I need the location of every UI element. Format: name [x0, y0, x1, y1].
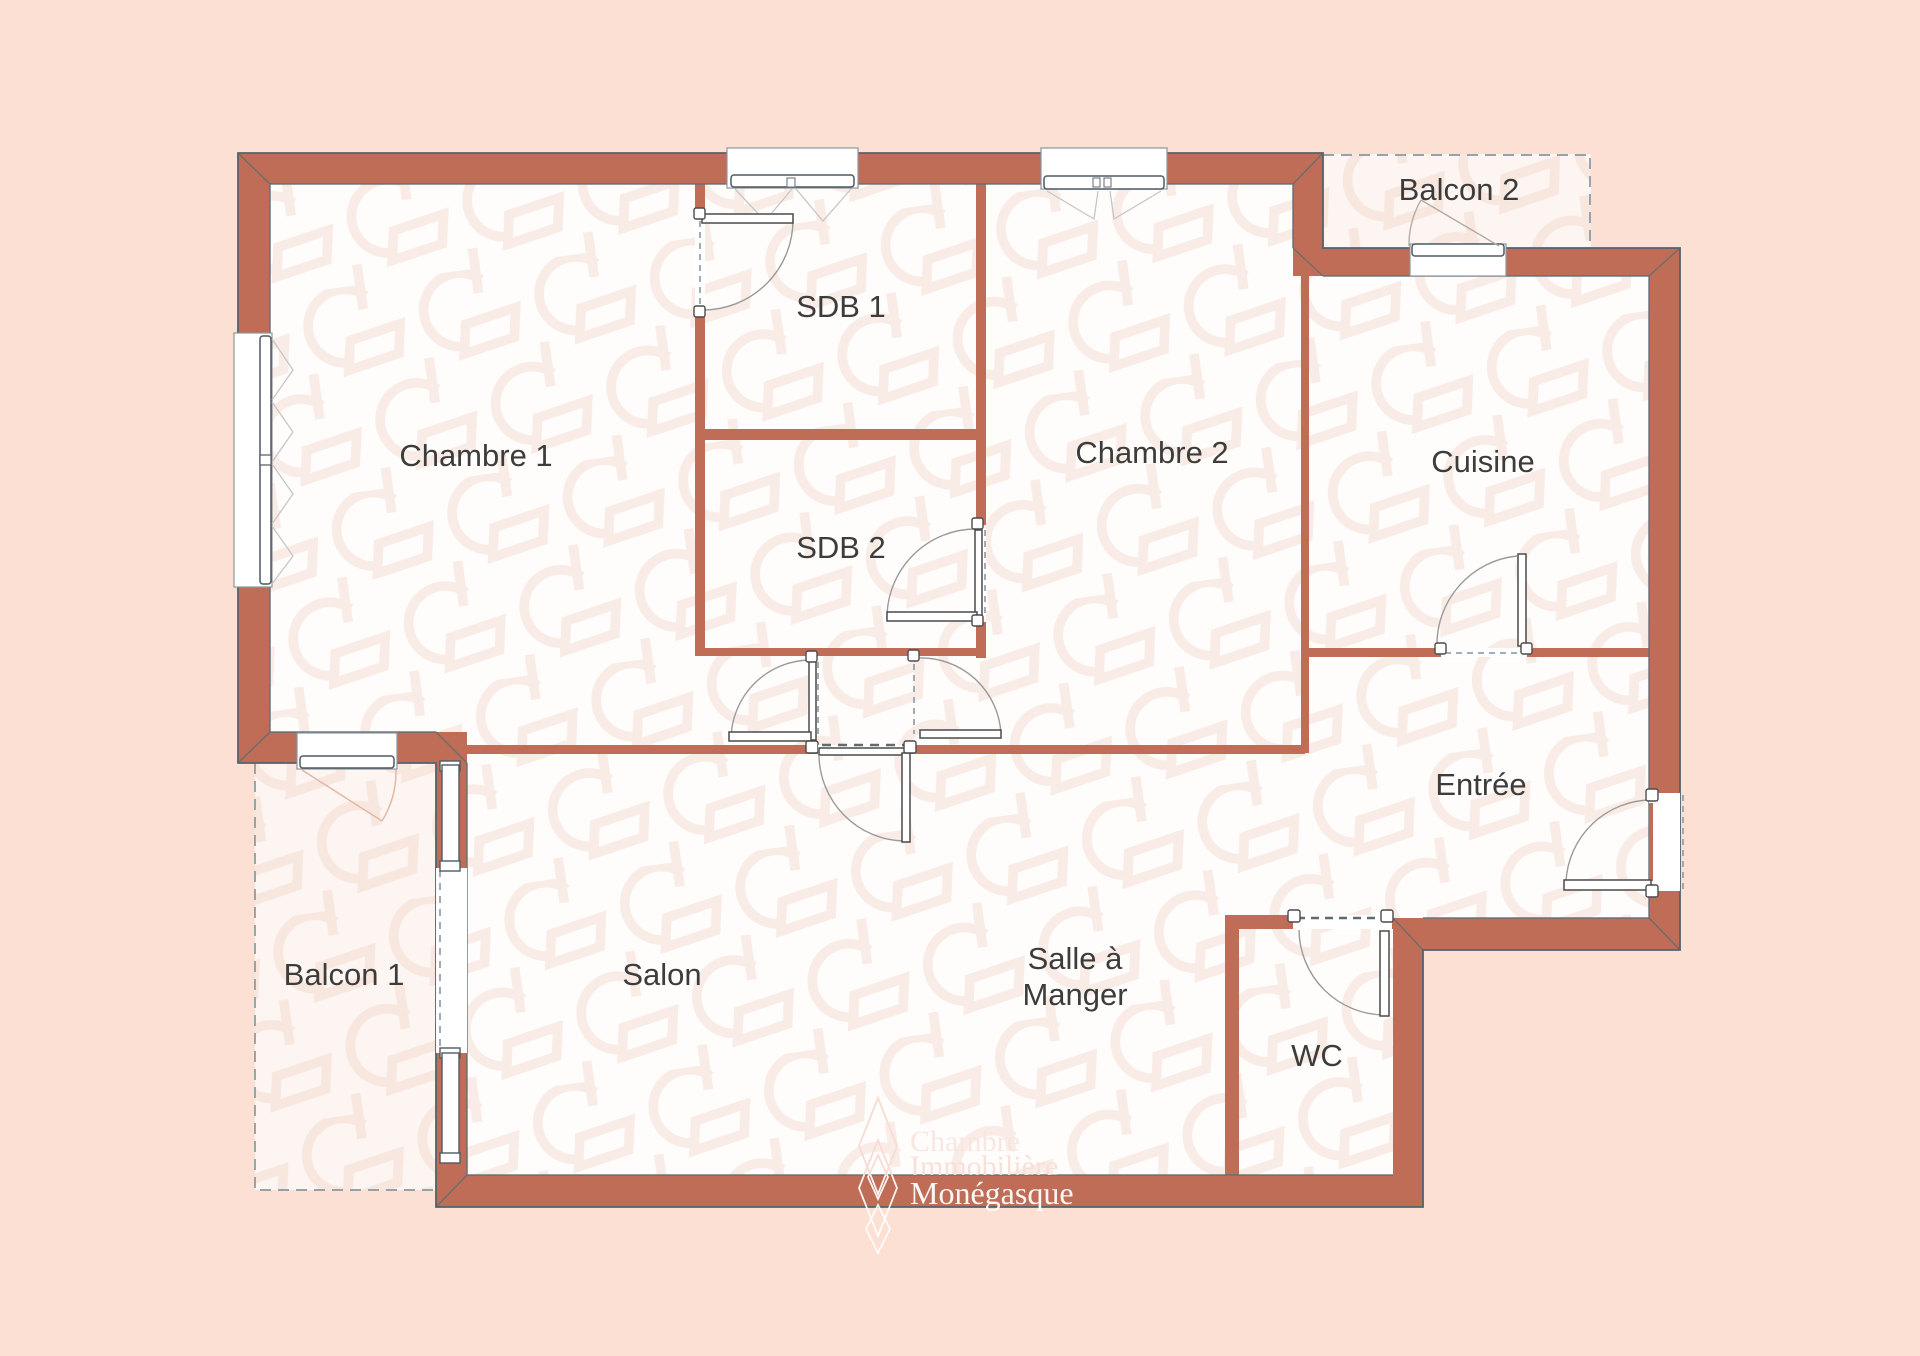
svg-text:Cuisine: Cuisine: [1431, 444, 1534, 479]
svg-text:Balcon 2: Balcon 2: [1399, 172, 1520, 207]
svg-text:Salle à: Salle à: [1028, 941, 1124, 976]
svg-text:WC: WC: [1291, 1038, 1343, 1073]
svg-text:Chambre 2: Chambre 2: [1075, 435, 1228, 470]
svg-text:Salon: Salon: [622, 957, 701, 992]
svg-text:SDB 1: SDB 1: [796, 289, 886, 324]
svg-text:Monégasque: Monégasque: [910, 1175, 1074, 1211]
svg-text:Entrée: Entrée: [1435, 767, 1526, 802]
svg-text:Manger: Manger: [1022, 977, 1127, 1012]
svg-text:Chambre 1: Chambre 1: [399, 438, 552, 473]
svg-text:SDB 2: SDB 2: [796, 530, 886, 565]
svg-text:Balcon 1: Balcon 1: [284, 957, 405, 992]
